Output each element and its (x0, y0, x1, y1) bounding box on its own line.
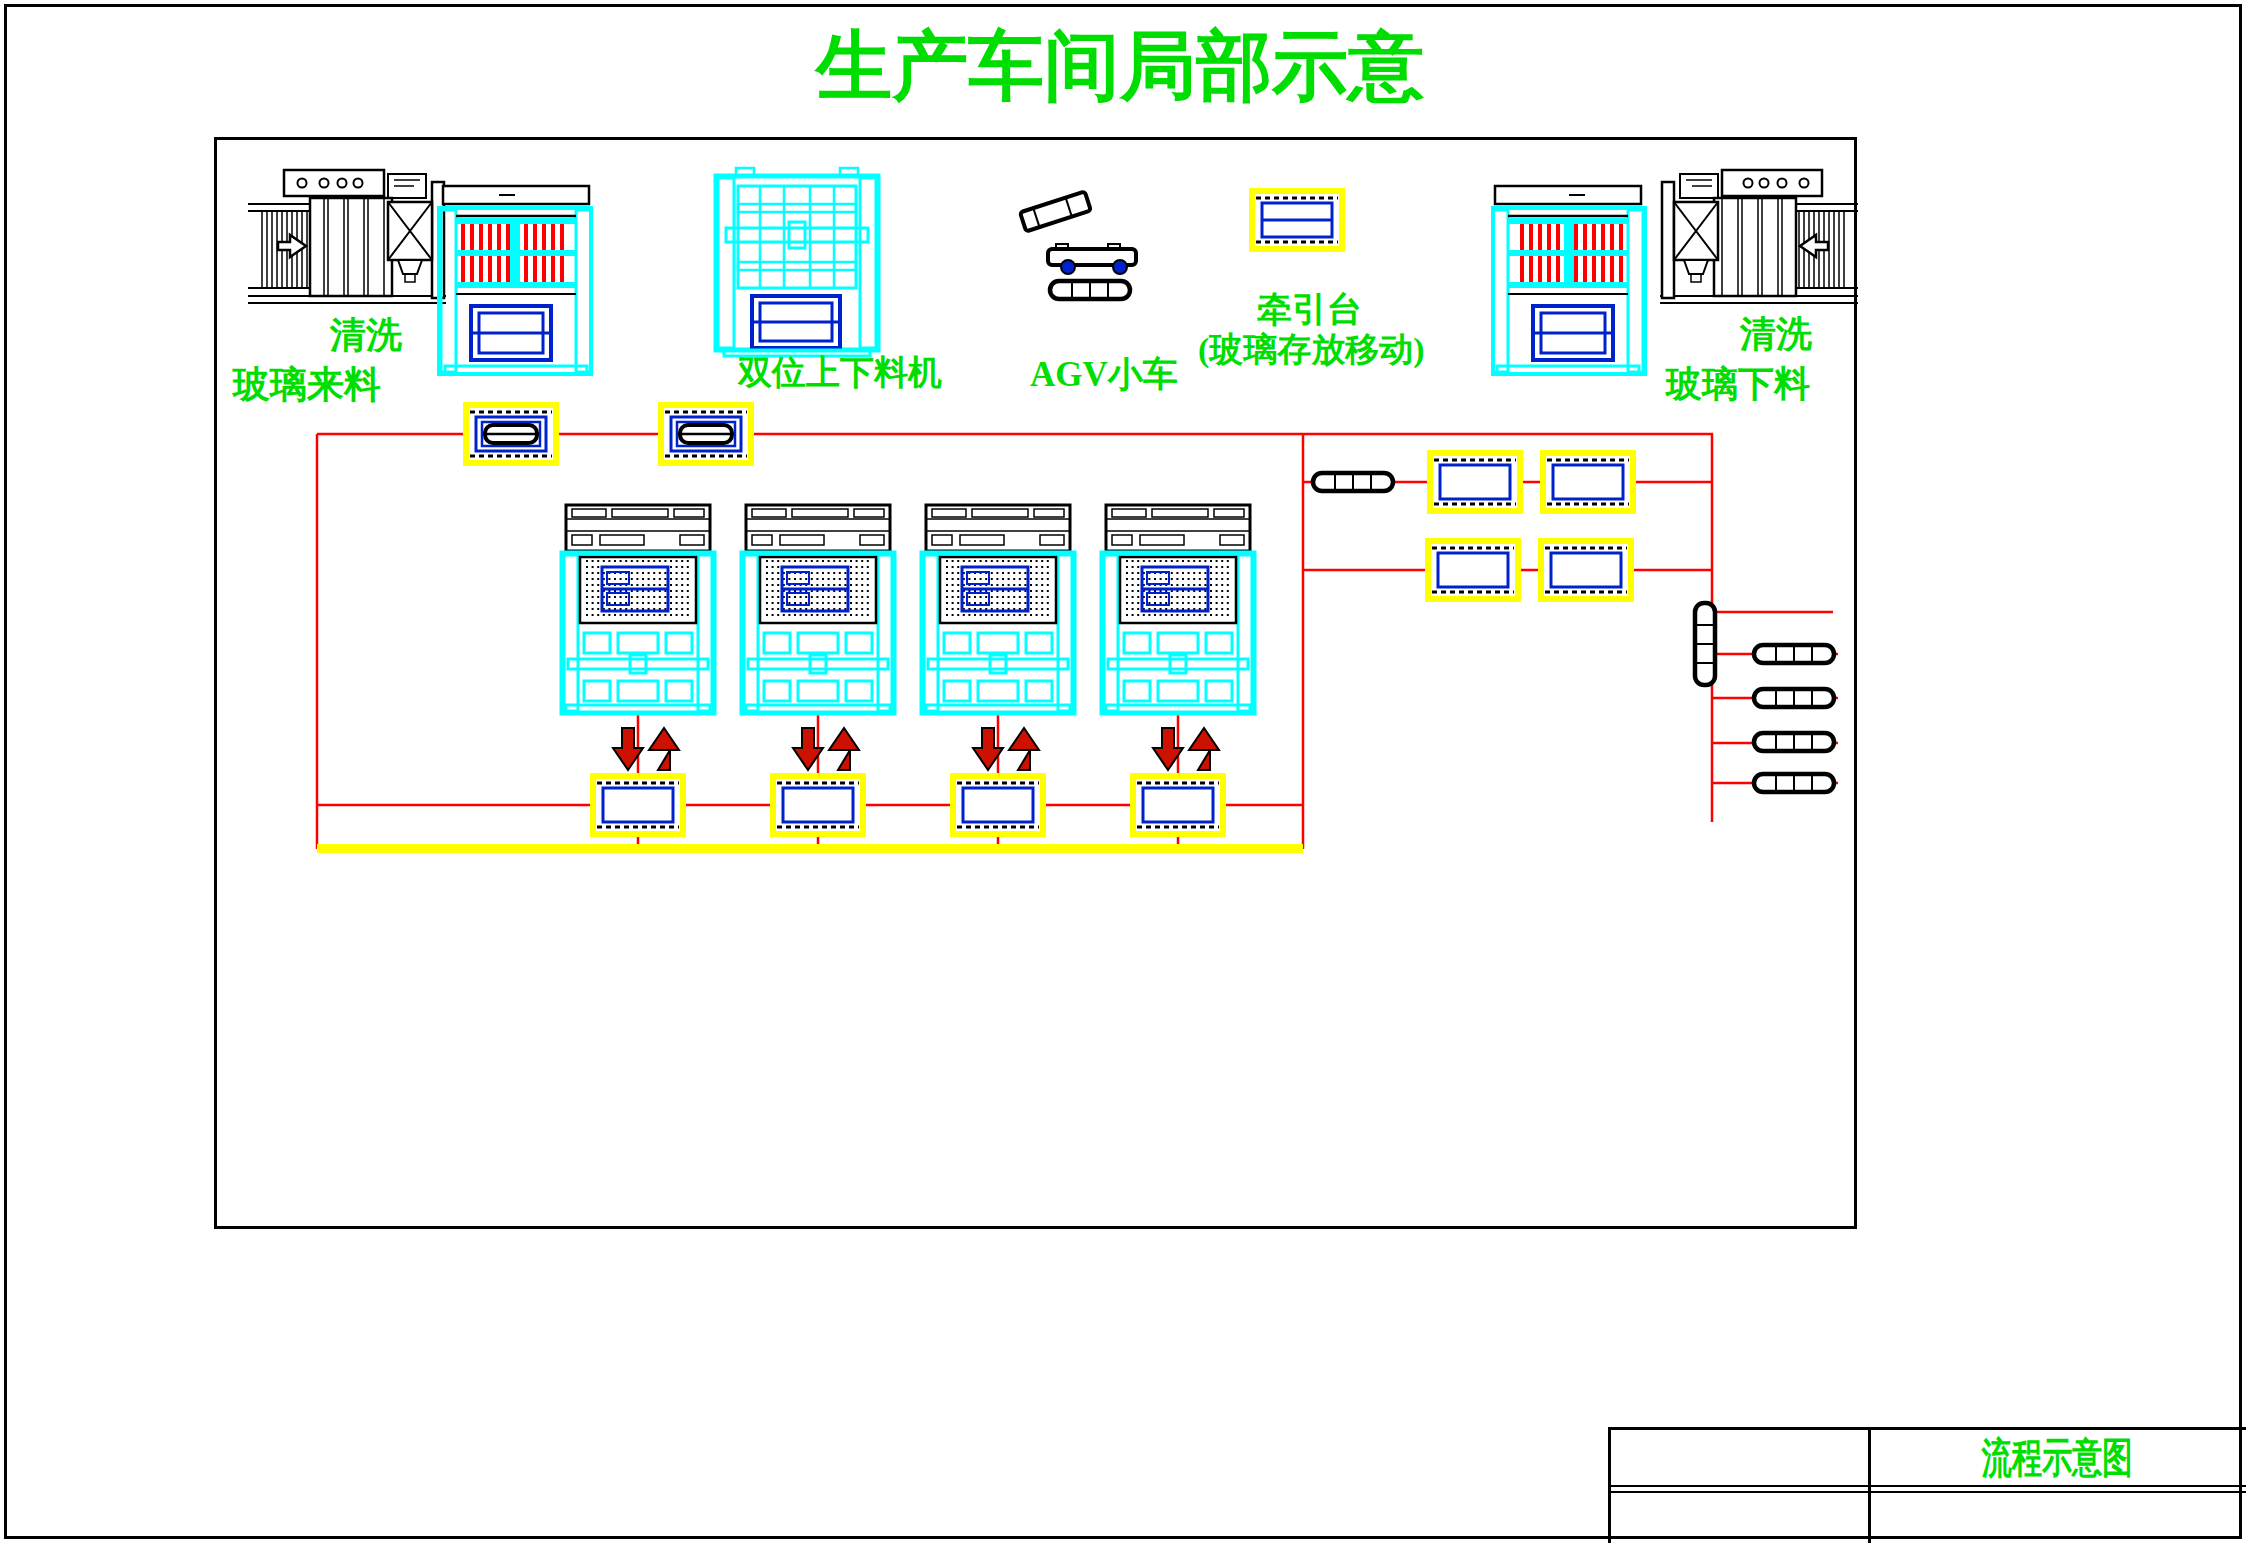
title-block: 流程示意图 (1608, 1427, 2246, 1543)
processing-machine-4 (1102, 505, 1254, 713)
label-agv-cart: AGV小车 (1030, 357, 1178, 394)
storage-pallet (1541, 541, 1631, 599)
title-block-row-line2 (1608, 1491, 2246, 1493)
label-traction-note: (玻璃存放移动) (1198, 332, 1425, 368)
workshop-drawing (0, 0, 2246, 1543)
storage-pallet (1430, 453, 1520, 511)
buffer-lane (317, 844, 1303, 853)
agv-on-path (1754, 772, 1834, 794)
storage-pallet (1543, 453, 1633, 511)
agv-on-path (1754, 687, 1834, 709)
processing-machine-1 (562, 505, 714, 713)
dual-position-loader (716, 168, 878, 356)
drawing-title: 流程示意图 (1923, 1430, 2191, 1486)
pallet-with-agv (661, 405, 751, 463)
washing-machine-left (439, 186, 591, 374)
agv-on-path (1313, 471, 1393, 493)
machine-pallet (953, 776, 1043, 834)
processing-machine-3 (922, 505, 1074, 713)
label-dual-loader: 双位上下料机 (738, 355, 942, 391)
agv-cart-views (1020, 191, 1136, 301)
label-wash-left: 清洗 (330, 317, 402, 355)
traction-platform-pallet (1252, 191, 1342, 249)
label-wash-right: 清洗 (1740, 316, 1812, 354)
label-glass-unloading: 玻璃下料 (1666, 366, 1810, 404)
storage-pallet (1428, 541, 1518, 599)
agv-on-path (1754, 731, 1834, 753)
glass-infeed-washer (248, 170, 446, 303)
label-traction-platform: 牵引台 (1257, 292, 1362, 329)
agv-vertical (1695, 603, 1715, 685)
machine-pallet (1133, 776, 1223, 834)
processing-machine-2 (742, 505, 894, 713)
transfer-arrows (613, 728, 1219, 770)
washing-machine-right (1493, 186, 1645, 374)
label-glass-incoming: 玻璃来料 (233, 366, 381, 405)
machine-pallet (593, 776, 683, 834)
machine-pallet (773, 776, 863, 834)
drawing-canvas: 生产车间局部示意 (0, 0, 2246, 1543)
agv-on-path (1754, 643, 1834, 665)
pallet-with-agv (466, 405, 556, 463)
glass-outfeed-washer (1660, 170, 1858, 303)
